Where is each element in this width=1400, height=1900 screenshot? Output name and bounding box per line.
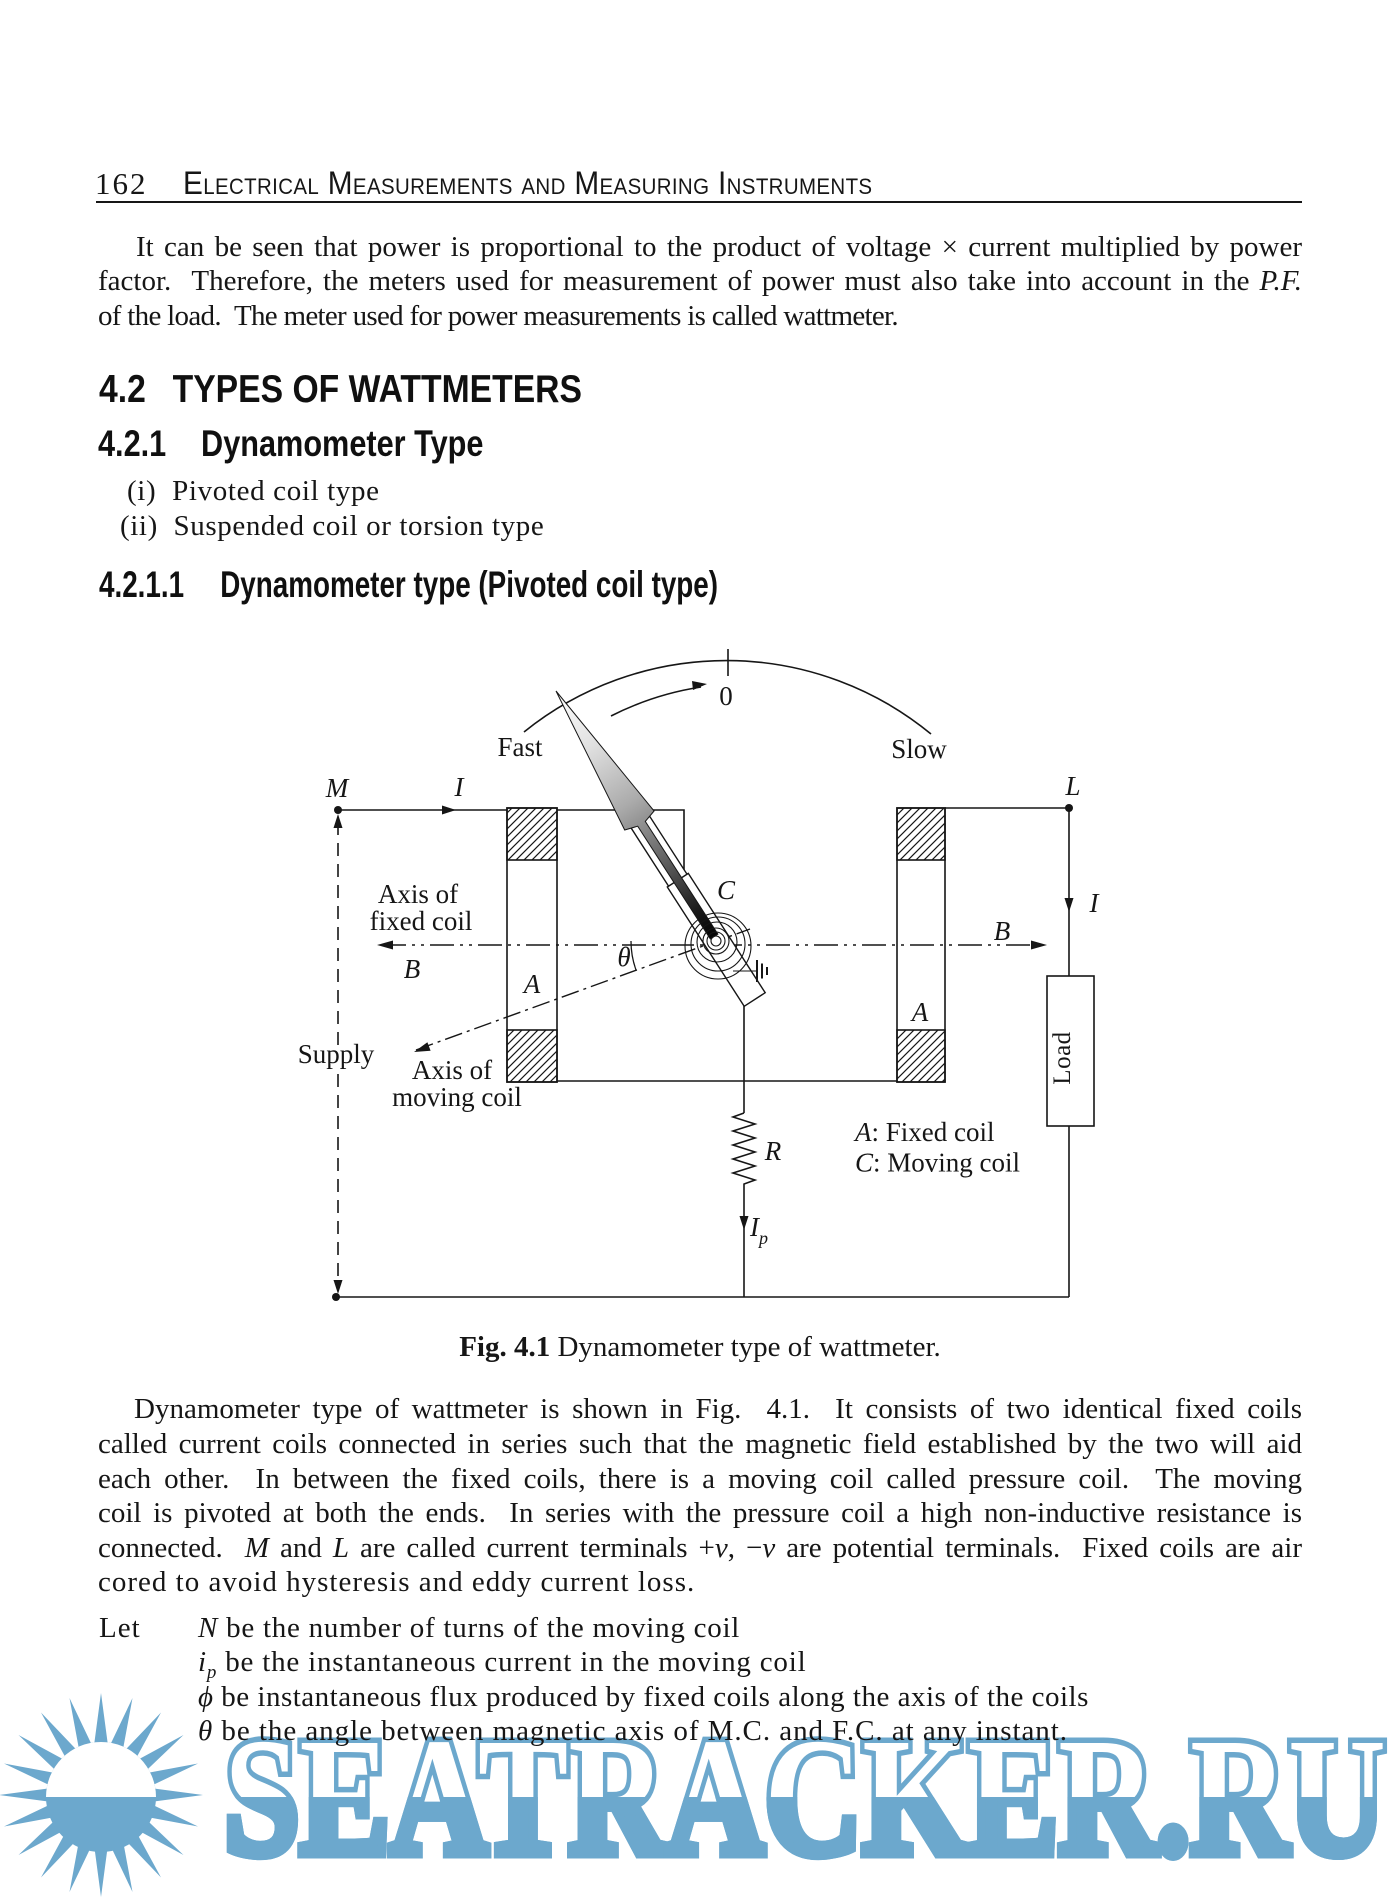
svg-text:Slow: Slow <box>891 734 947 764</box>
svg-text:B: B <box>994 916 1011 946</box>
svg-text:Axis of: Axis of <box>412 1055 492 1085</box>
svg-text:Fast: Fast <box>497 732 543 762</box>
svg-text:Load: Load <box>1049 1031 1076 1084</box>
svg-text:Axis of: Axis of <box>378 879 458 909</box>
svg-text:I: I <box>1089 888 1101 918</box>
svg-text:R: R <box>764 1136 782 1166</box>
svg-text:C: Moving coil: C: Moving coil <box>855 1148 1020 1178</box>
svg-text:C: C <box>717 875 736 905</box>
svg-text:Ip: Ip <box>749 1212 768 1248</box>
svg-text:moving coil: moving coil <box>392 1082 522 1112</box>
svg-text:fixed coil: fixed coil <box>370 906 473 936</box>
svg-text:A: A <box>522 969 541 999</box>
svg-text:Supply: Supply <box>298 1039 375 1069</box>
svg-text:A: A <box>910 997 929 1027</box>
svg-text:I: I <box>454 772 466 802</box>
svg-text:B: B <box>404 954 421 984</box>
svg-text:A: Fixed coil: A: Fixed coil <box>853 1117 995 1147</box>
svg-text:θ: θ <box>617 942 630 972</box>
svg-text:L: L <box>1064 771 1080 801</box>
svg-text:0: 0 <box>719 681 733 711</box>
svg-text:M: M <box>325 773 350 803</box>
